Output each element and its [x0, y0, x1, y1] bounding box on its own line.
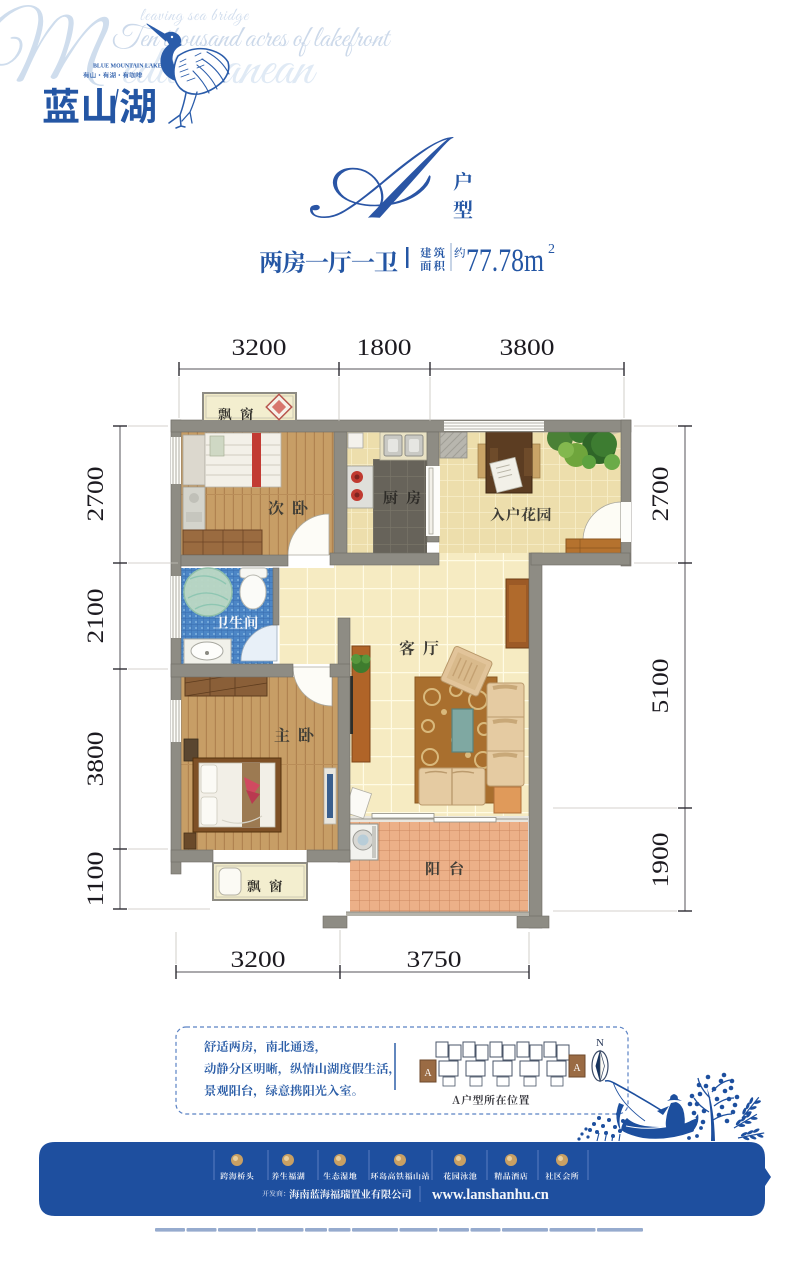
svg-text:1800: 1800	[357, 335, 412, 360]
svg-text:3800: 3800	[500, 335, 555, 360]
svg-text:3200: 3200	[231, 947, 286, 972]
svg-text:77.78m: 77.78m	[466, 243, 544, 279]
svg-text:2100: 2100	[83, 589, 108, 644]
svg-text:2700: 2700	[83, 467, 108, 522]
svg-text:2700: 2700	[648, 467, 673, 522]
svg-text:N: N	[596, 1037, 604, 1049]
svg-text:3200: 3200	[232, 335, 287, 360]
svg-text:3800: 3800	[83, 732, 108, 787]
svg-text:www.lanshanhu.cn: www.lanshanhu.cn	[432, 1187, 549, 1203]
svg-text:A: A	[424, 1068, 432, 1079]
svg-text:3750: 3750	[407, 947, 462, 972]
svg-text:1100: 1100	[83, 852, 108, 907]
svg-text:BLUE MOUNTAIN LAKE: BLUE MOUNTAIN LAKE	[93, 64, 162, 70]
svg-text:A: A	[573, 1063, 581, 1074]
svg-text:5100: 5100	[648, 659, 673, 714]
svg-text:1900: 1900	[648, 833, 673, 888]
svg-text:2: 2	[548, 242, 555, 257]
